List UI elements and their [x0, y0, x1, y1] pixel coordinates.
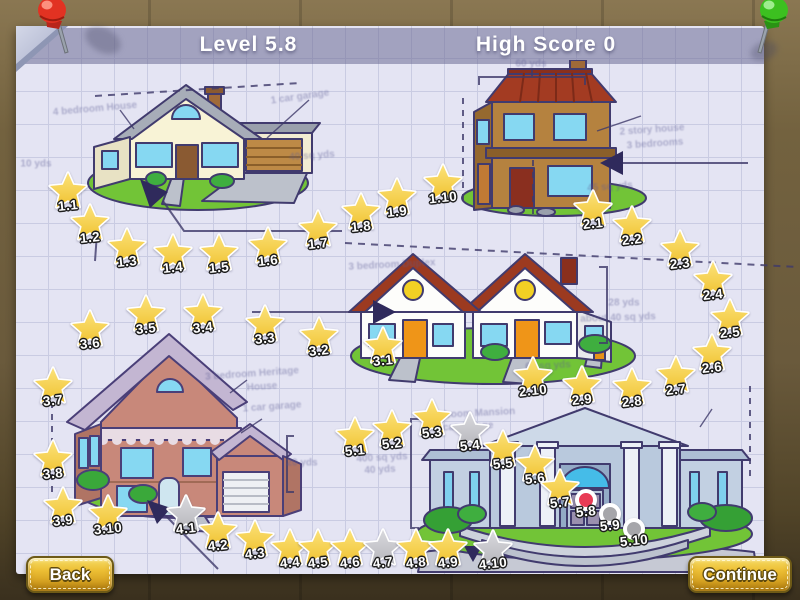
- level-number-label: 4.5: [307, 554, 329, 571]
- level-node-4.3[interactable]: 4.3: [236, 519, 274, 557]
- level-number-label: 1.10: [428, 189, 458, 207]
- level-node-3.8[interactable]: 3.8: [34, 439, 72, 477]
- level-number-label: 5.1: [344, 442, 366, 459]
- level-node-3.9[interactable]: 3.9: [44, 486, 82, 524]
- level-number-label: 2.8: [621, 393, 643, 410]
- level-number-label: 2.3: [669, 255, 691, 272]
- level-node-3.2[interactable]: 3.2: [300, 316, 338, 354]
- level-node-1.2[interactable]: 1.2: [71, 203, 109, 241]
- level-number-label: 1.8: [350, 218, 372, 235]
- level-number-label: 5.2: [381, 435, 403, 452]
- level-number-label: 1.9: [386, 203, 408, 220]
- level-node-2.9[interactable]: 2.9: [563, 365, 601, 403]
- green-pushpin-icon: [746, 0, 792, 60]
- level-node-1.6[interactable]: 1.6: [249, 226, 287, 264]
- level-number-label: 5.4: [459, 437, 481, 454]
- level-node-1.8[interactable]: 1.8: [342, 192, 380, 230]
- level-node-4.10[interactable]: 4.10: [474, 529, 512, 567]
- level-number-label: 3.1: [372, 352, 394, 369]
- level-number-label: 4.3: [244, 545, 266, 562]
- level-number-label: 3.10: [93, 520, 123, 538]
- level-node-2.10[interactable]: 2.10: [514, 356, 552, 394]
- continue-button[interactable]: Continue: [688, 556, 792, 593]
- level-number-label: 3.4: [192, 319, 214, 336]
- level-node-2.4[interactable]: 2.4: [694, 260, 732, 298]
- level-map: 1.11.21.31.41.51.61.71.81.91.102.12.22.3…: [0, 0, 800, 600]
- level-node-3.10[interactable]: 3.10: [89, 494, 127, 532]
- level-number-label: 4.9: [437, 554, 459, 571]
- level-number-label: 1.2: [79, 229, 101, 246]
- level-number-label: 2.9: [571, 391, 593, 408]
- level-node-1.4[interactable]: 1.4: [154, 233, 192, 271]
- level-number-label: 4.4: [279, 554, 301, 571]
- level-select-screen: Level 5.8 High Score 0: [0, 0, 800, 600]
- level-number-label: 3.7: [42, 392, 64, 409]
- level-number-label: 2.2: [621, 231, 643, 248]
- level-number-label: 1.5: [208, 259, 230, 276]
- level-node-3.4[interactable]: 3.4: [184, 293, 222, 331]
- level-node-5.1[interactable]: 5.1: [336, 416, 374, 454]
- level-number-label: 4.8: [405, 554, 427, 571]
- level-node-3.7[interactable]: 3.7: [34, 366, 72, 404]
- level-node-2.7[interactable]: 2.7: [657, 355, 695, 393]
- level-number-label: 2.1: [582, 215, 604, 232]
- red-pushpin-icon: [34, 0, 80, 60]
- level-number-label: 2.7: [665, 381, 687, 398]
- level-node-1.3[interactable]: 1.3: [108, 227, 146, 265]
- level-number-label: 1.4: [162, 259, 184, 276]
- level-number-label: 3.2: [308, 342, 330, 359]
- level-number-label: 5.3: [421, 424, 443, 441]
- level-node-3.1[interactable]: 3.1: [364, 326, 402, 364]
- level-number-label: 2.10: [518, 382, 548, 400]
- back-button[interactable]: Back: [26, 556, 114, 593]
- level-node-2.5[interactable]: 2.5: [711, 298, 749, 336]
- level-node-4.2[interactable]: 4.2: [199, 511, 237, 549]
- level-number-label: 3.8: [42, 465, 64, 482]
- level-number-label: 5.5: [492, 455, 514, 472]
- level-number-label: 4.6: [339, 554, 361, 571]
- level-number-label: 3.9: [52, 512, 74, 529]
- level-node-1.7[interactable]: 1.7: [299, 209, 337, 247]
- level-node-1.10[interactable]: 1.10: [424, 163, 462, 201]
- level-number-label: 1.3: [116, 253, 138, 270]
- level-number-label: 3.6: [79, 335, 101, 352]
- level-node-3.5[interactable]: 3.5: [127, 294, 165, 332]
- level-node-2.2[interactable]: 2.2: [613, 205, 651, 243]
- level-number-label: 4.10: [478, 555, 508, 573]
- level-node-3.6[interactable]: 3.6: [71, 309, 109, 347]
- level-node-2.6[interactable]: 2.6: [693, 333, 731, 371]
- level-number-label: 2.6: [701, 359, 723, 376]
- level-number-label: 3.3: [254, 330, 276, 347]
- level-number-label: 4.2: [207, 537, 229, 554]
- level-node-5.3[interactable]: 5.3: [413, 398, 451, 436]
- level-number-label: 4.1: [175, 520, 197, 537]
- level-number-label: 1.7: [307, 235, 329, 252]
- level-node-2.8[interactable]: 2.8: [613, 367, 651, 405]
- level-number-label: 1.6: [257, 252, 279, 269]
- level-number-label: 5.10: [619, 532, 649, 550]
- level-number-label: 3.5: [135, 320, 157, 337]
- level-node-5.2[interactable]: 5.2: [373, 409, 411, 447]
- level-node-3.3[interactable]: 3.3: [246, 304, 284, 342]
- level-node-5.10[interactable]: 5.10: [615, 510, 653, 548]
- level-node-1.5[interactable]: 1.5: [200, 233, 238, 271]
- level-number-label: 4.7: [372, 554, 394, 571]
- level-node-4.9[interactable]: 4.9: [429, 528, 467, 566]
- level-node-1.9[interactable]: 1.9: [378, 177, 416, 215]
- level-node-2.1[interactable]: 2.1: [574, 189, 612, 227]
